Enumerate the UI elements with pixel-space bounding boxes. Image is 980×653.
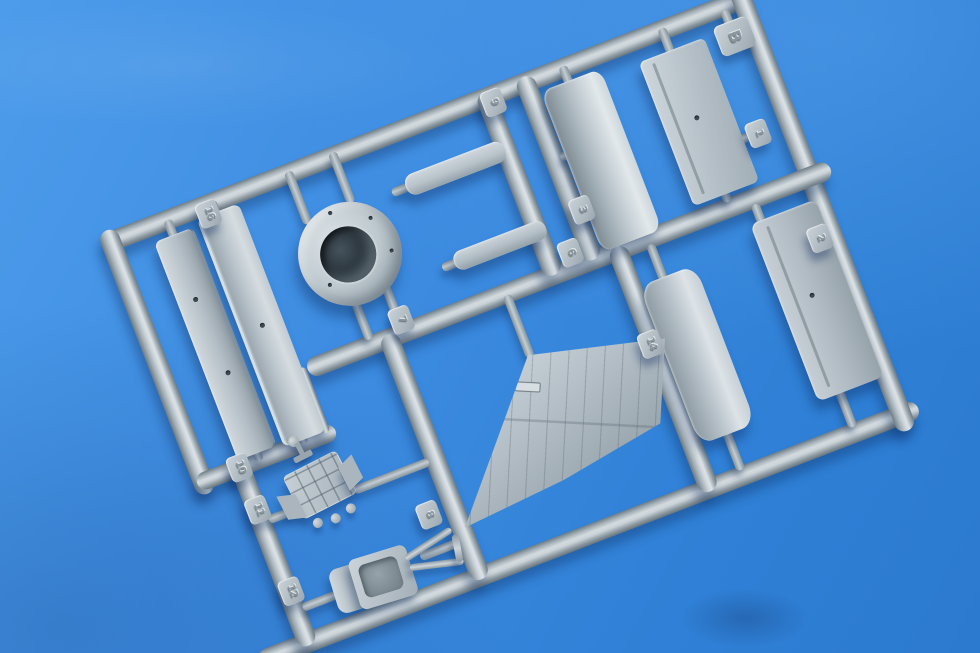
sprue-frame: B 16 9 7 3 6 1 2 14 8 10	[120, 2, 896, 653]
gate-wing-leading-edge	[503, 294, 535, 359]
part-tag-1: 1	[743, 117, 773, 149]
ejector-pin-mark	[193, 296, 199, 302]
intake-opening	[312, 218, 384, 290]
seat-rail-upper	[404, 526, 453, 561]
ejector-pin-mark	[809, 292, 815, 298]
wing-skin-panel-part	[639, 37, 760, 206]
rivet-hole	[389, 248, 394, 253]
panel-knob	[344, 502, 357, 515]
instrument-panel-assembly	[261, 422, 379, 549]
sprue-letter-label: B	[725, 28, 744, 45]
seat-cushion	[357, 555, 405, 599]
wing-slot-detail	[514, 381, 540, 392]
rivet-hole	[328, 211, 333, 216]
ejector-pin-mark	[259, 322, 265, 328]
ejector-pin-mark	[225, 370, 231, 376]
page: { "colors": { "backdrop_blue": "#3f8edf"…	[0, 0, 980, 653]
panel-knob	[311, 516, 324, 529]
rivet-hole	[368, 215, 373, 220]
panel-ridge-line	[652, 63, 705, 195]
rivet-hole	[327, 282, 332, 287]
photo-backdrop: B 16 9 7 3 6 1 2 14 8 10	[0, 0, 980, 653]
panel-knob	[329, 512, 342, 525]
flap-part-upper	[402, 139, 509, 198]
ejector-pin-mark	[694, 115, 700, 121]
gate-curved-panel-bottom	[722, 429, 745, 471]
